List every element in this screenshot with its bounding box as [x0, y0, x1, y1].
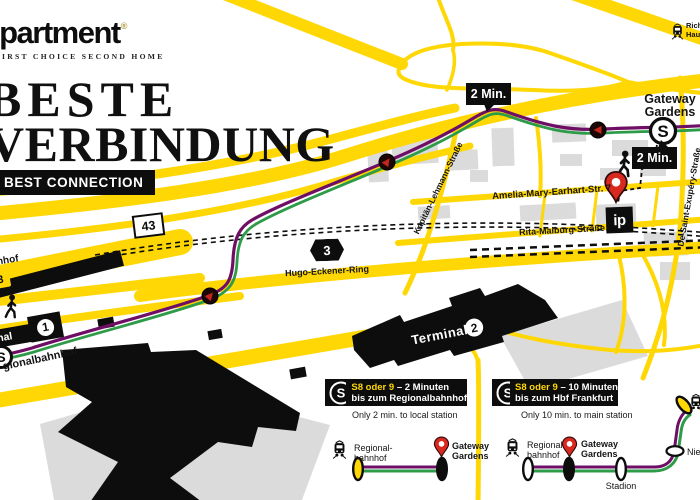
stop-from-line1: Regional-	[354, 443, 393, 453]
stop-from-line1: Regional-	[527, 440, 566, 450]
map-infographic: Terminal 2	[0, 0, 700, 500]
train-icon	[506, 439, 519, 457]
building	[470, 170, 488, 182]
headline-line2: bis zum Regionalbahnhof	[351, 393, 467, 404]
direction-hint-line2: Hau	[686, 30, 700, 39]
stop-marker-white	[616, 458, 626, 480]
brand-logo: ipartment®	[0, 15, 127, 51]
page-title-line2: VERBINDUNG	[0, 119, 335, 169]
direction-marker	[379, 154, 395, 170]
infobox1-diagram: Regional- bahnhof Gateway Gardens	[330, 432, 490, 498]
direction-hint-line1: Rich	[686, 21, 700, 30]
road	[224, 0, 402, 64]
walk-time-bubble-top: 2 Min.	[466, 83, 511, 105]
road	[437, 0, 453, 50]
walk-time-bubble-station: 2 Min.	[632, 147, 677, 169]
subtitle-banner: BEST CONNECTION	[0, 170, 155, 195]
sbahn-letter: S	[657, 122, 668, 141]
road	[536, 118, 541, 196]
direction-marker	[590, 122, 606, 138]
platform-block	[289, 367, 306, 380]
stop-from-line2: bahnhof	[527, 450, 560, 460]
location-pin-icon	[434, 437, 448, 457]
headline-highlight: S8 oder 9	[351, 382, 394, 393]
registered-mark: ®	[121, 21, 128, 31]
stop-mid-line1: Gateway	[581, 439, 618, 449]
station-name-line2: Gardens	[639, 106, 700, 119]
direction-marker	[202, 288, 218, 304]
stop-to-line1: Gateway	[452, 441, 489, 451]
road	[653, 186, 658, 226]
building	[520, 203, 577, 222]
direction-hint: Rich Hau	[686, 21, 700, 39]
walk-time-text: 2 Min.	[637, 151, 672, 165]
road-badge-43: 43	[132, 212, 166, 239]
road-loop	[398, 43, 628, 90]
infobox2-diagram: Regional- bahnhof Gateway Gardens Stadio…	[495, 390, 700, 500]
stop-marker-white	[523, 458, 533, 480]
infobox1-header: S S8 oder 9 – 2 Minuten bis zum Regional…	[325, 379, 467, 406]
train-icon	[333, 441, 346, 459]
stop-marker-black	[437, 458, 447, 480]
building	[491, 128, 514, 167]
brand-tagline: FIRST CHOICE SECOND HOME	[0, 52, 165, 61]
stop-marker-white	[667, 446, 684, 456]
building	[560, 154, 582, 166]
terminal1-number: 1	[36, 317, 56, 337]
infobox1-headline: S8 oder 9 – 2 Minuten bis zum Regionalba…	[351, 382, 467, 404]
stop-marker-yellow	[353, 458, 363, 480]
walk-time-text: 2 Min.	[471, 87, 506, 101]
bubble-tail	[484, 104, 495, 112]
platform-block	[207, 329, 222, 340]
station-label-gateway-gardens: Gateway Gardens	[639, 93, 700, 119]
stop-marker-black	[564, 458, 574, 480]
road	[447, 50, 454, 90]
stop-mid-line2: Gardens	[581, 449, 618, 459]
sbahn-letter: S	[337, 385, 346, 400]
headline-rest: – 2 Minuten	[394, 382, 449, 393]
bubble-tail	[658, 140, 669, 148]
stop-stadion-label: Stadion	[606, 481, 637, 491]
brand-name: ipartment	[0, 15, 120, 50]
infobox1-note: Only 2 min. to local station	[352, 410, 458, 420]
autobahn-badge-3: 3	[310, 238, 345, 261]
property-marker-ip: ip	[606, 207, 634, 234]
sbahn-logo-badge: S	[328, 380, 346, 406]
location-pin-icon	[562, 437, 576, 457]
stop-nied-label: Nied	[687, 447, 700, 457]
stop-to-line2: Gardens	[452, 451, 489, 461]
stop-marker-yellow	[674, 394, 694, 415]
